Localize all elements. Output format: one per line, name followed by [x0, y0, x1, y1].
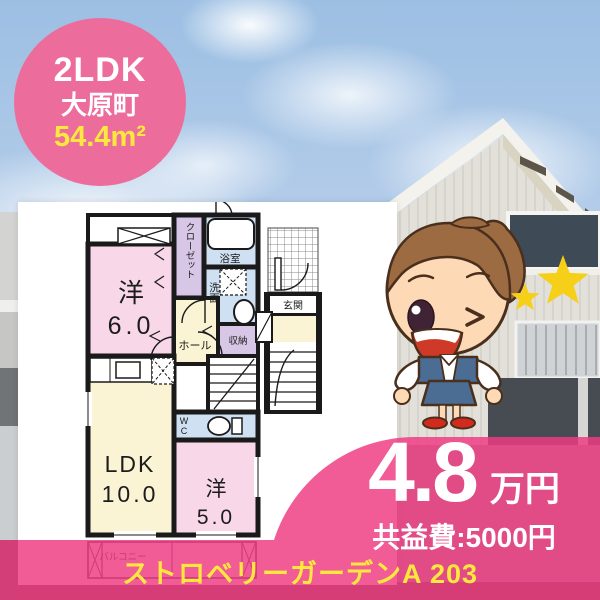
sink-basin	[234, 300, 254, 324]
closet-label: クローゼット	[184, 222, 196, 279]
entrance-label: 玄関	[283, 299, 303, 312]
price-block: 4.8 万円 共益費:5000円	[330, 430, 598, 556]
hair-fold	[451, 217, 489, 228]
rent-unit: 万円	[490, 461, 560, 512]
window-symbol	[118, 228, 170, 244]
mascot-character	[383, 213, 533, 438]
eye-highlight	[412, 306, 421, 315]
fist-right	[486, 388, 502, 404]
washing-machine	[220, 269, 246, 295]
listing-card: 洋 6.0 クローゼット 浴室 洗面 ホール 収納 LDK 10.0 WC 洋 …	[0, 0, 600, 600]
room-west1-label: 洋	[118, 278, 144, 308]
kitchen-counter	[90, 358, 174, 384]
bath-label: 浴室	[220, 252, 241, 265]
property-name: ストロベリーガーデンA 203	[0, 552, 600, 591]
entrance-section	[256, 228, 322, 414]
room-west1-size: 6.0	[108, 312, 155, 340]
room-west2-label: 洋	[206, 478, 227, 501]
washroom-label: 洗面	[208, 282, 220, 304]
common-fee: 共益費:5000円	[330, 516, 598, 556]
star-icon-small	[511, 283, 540, 310]
sleeve-left	[396, 360, 419, 390]
storage-label: 収納	[228, 335, 247, 347]
star-icons	[498, 248, 598, 320]
area-badge: 2LDK 大原町 54.4m²	[14, 18, 186, 186]
ldk-size: 10.0	[102, 481, 159, 507]
badge-layout: 2LDK	[54, 50, 147, 90]
badge-town: 大原町	[61, 90, 139, 121]
star-icon-large	[537, 255, 588, 304]
room-west2-size: 5.0	[197, 506, 235, 529]
hall-label: ホール	[179, 339, 212, 352]
bathtub	[208, 219, 254, 249]
left-building-sliver	[0, 212, 18, 600]
skirt	[422, 381, 476, 405]
rent-amount: 4.8	[368, 430, 476, 514]
ldk-label: LDK	[105, 451, 156, 477]
fist-left	[394, 388, 410, 404]
sleeve-right	[477, 360, 500, 390]
wc-label: WC	[179, 416, 189, 436]
toilet	[208, 417, 242, 435]
badge-area: 54.4m²	[54, 120, 146, 154]
